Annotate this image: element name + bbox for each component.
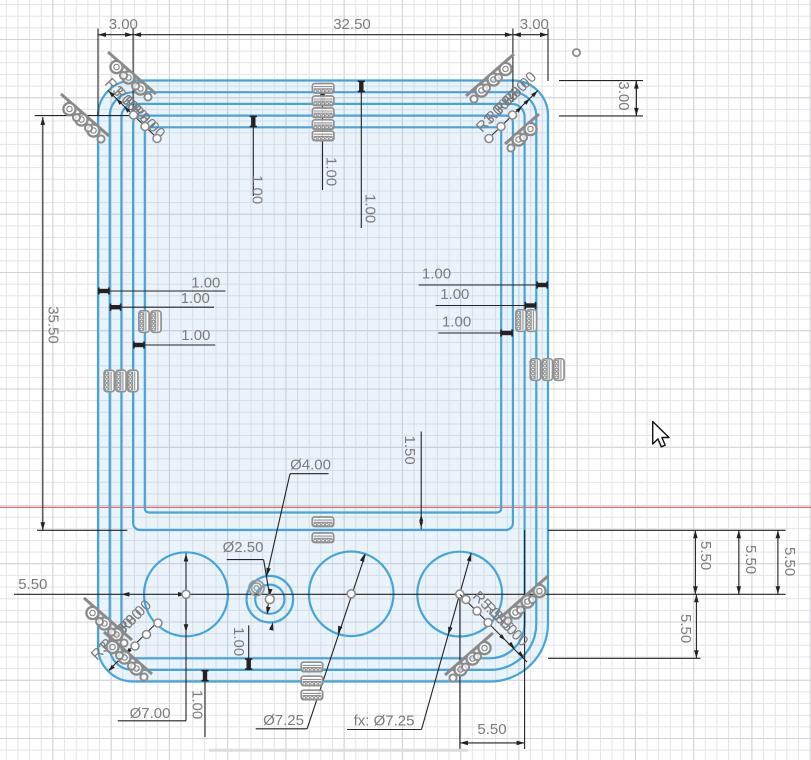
- svg-text:1.00: 1.00: [323, 157, 340, 186]
- svg-text:1.00: 1.00: [361, 194, 378, 223]
- svg-text:1.00: 1.00: [442, 314, 471, 331]
- svg-text:Ø2.50: Ø2.50: [223, 539, 264, 556]
- svg-text:Ø7.25: Ø7.25: [263, 712, 304, 729]
- svg-text:1.00: 1.00: [189, 690, 206, 719]
- svg-text:1.00: 1.00: [440, 286, 469, 303]
- svg-text:5.50: 5.50: [781, 547, 798, 576]
- svg-text:35.50: 35.50: [45, 306, 62, 344]
- svg-text:1.00: 1.00: [181, 327, 210, 344]
- svg-text:1.00: 1.00: [181, 290, 210, 307]
- svg-text:fx: Ø7.25: fx: Ø7.25: [354, 713, 415, 730]
- svg-text:5.50: 5.50: [477, 721, 506, 738]
- svg-text:1.50: 1.50: [401, 436, 418, 465]
- svg-text:5.50: 5.50: [742, 545, 759, 574]
- svg-text:5.50: 5.50: [697, 541, 714, 570]
- svg-text:3.00: 3.00: [520, 16, 549, 33]
- svg-text:5.50: 5.50: [677, 614, 694, 643]
- svg-text:Ø4.00: Ø4.00: [290, 457, 331, 474]
- svg-text:1.00: 1.00: [230, 627, 247, 656]
- svg-text:3.00: 3.00: [615, 81, 632, 110]
- svg-text:1.00: 1.00: [248, 175, 265, 204]
- svg-text:32.50: 32.50: [333, 16, 371, 33]
- svg-text:1.00: 1.00: [422, 265, 451, 282]
- svg-text:Ø7.00: Ø7.00: [130, 705, 171, 722]
- svg-text:3.00: 3.00: [109, 16, 138, 33]
- svg-text:5.50: 5.50: [18, 576, 47, 593]
